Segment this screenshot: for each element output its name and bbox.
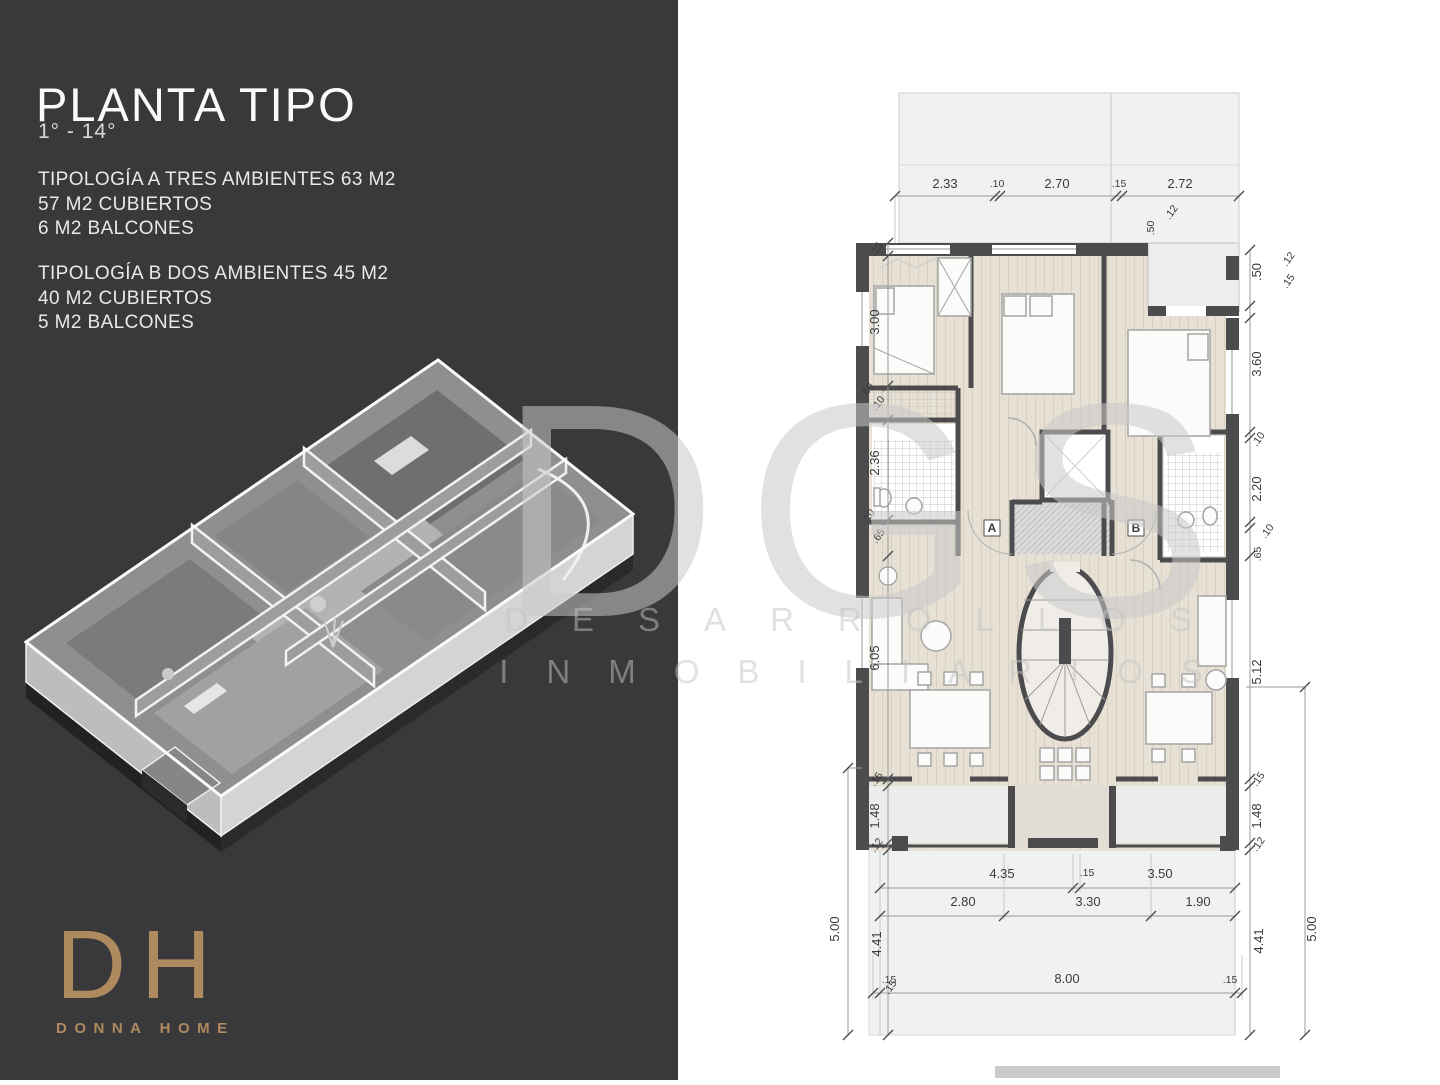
left-info-panel: PLANTA TIPO 1° - 14° TIPOLOGÍA A TRES AM… (0, 0, 678, 1080)
dim-right-7: .10 (1258, 522, 1276, 541)
dim-right-outer-1: 4.41 (1251, 928, 1266, 953)
isometric-floorplan-render (18, 352, 658, 857)
dim-left-outer-2: 5.00 (827, 916, 842, 941)
dim-bottom-upper-3: 3.50 (1147, 866, 1172, 881)
dim-right-1: .50 (1249, 263, 1264, 281)
dim-bottom-mid-2: 3.30 (1075, 894, 1100, 909)
typology-a-block: TIPOLOGÍA A TRES AMBIENTES 63 M2 57 M2 C… (38, 168, 396, 242)
dim-bottom-mid-1: 2.80 (950, 894, 975, 909)
dim-right-10: .15 (1249, 770, 1267, 789)
unit-label-a: A (988, 521, 997, 535)
dim-bottom-upper-1: 4.35 (989, 866, 1014, 881)
typology-b-block: TIPOLOGÍA B DOS AMBIENTES 45 M2 40 M2 CU… (38, 262, 388, 336)
dim-bottom-lower-2: 8.00 (1054, 971, 1079, 986)
dim-left-10: 1.48 (867, 803, 882, 828)
presentation-slide: PLANTA TIPO 1° - 14° TIPOLOGÍA A TRES AM… (0, 0, 1440, 1080)
dim-right-3: .12 (1279, 250, 1297, 269)
floor-plan-area: A B (678, 0, 1440, 1080)
dim-left-5: 2.36 (867, 450, 882, 475)
brand-logo-name: DONNA HOME (56, 1020, 235, 1037)
unit-label-b: B (1132, 521, 1141, 535)
dim-right-2: .15 (1279, 272, 1297, 291)
brand-logo: DH DONNA HOME (56, 916, 235, 1037)
dim-right-8: .65 (1252, 547, 1264, 562)
floor-range: 1° - 14° (38, 120, 117, 144)
typology-a-line2: 57 M2 CUBIERTOS (38, 193, 396, 218)
typology-b-line3: 5 M2 BALCONES (38, 311, 388, 336)
dim-top-1: 2.33 (932, 176, 957, 191)
brand-logo-initials: DH (56, 916, 235, 1013)
floor-plan-drawing: A B (678, 0, 1440, 1080)
dim-top-3: 2.70 (1044, 176, 1069, 191)
dim-balcony-b-depth: .50 (1145, 221, 1157, 236)
dim-right-9: 5.12 (1249, 659, 1264, 684)
dim-right-5: .10 (1249, 430, 1267, 449)
dim-bottom-lower-3: .15 (1223, 974, 1238, 986)
dim-right-6: 2.20 (1249, 476, 1264, 501)
typology-b-line1: TIPOLOGÍA B DOS AMBIENTES 45 M2 (38, 262, 388, 287)
dim-left-8: 6.05 (867, 645, 882, 670)
dim-bottom-upper-2: .15 (1080, 867, 1095, 879)
dim-right-outer-2: 5.00 (1304, 916, 1319, 941)
dim-top-4: .15 (1112, 178, 1127, 190)
dim-right-11: 1.48 (1249, 803, 1264, 828)
dim-right-4: 3.60 (1249, 351, 1264, 376)
typology-a-line3: 6 M2 BALCONES (38, 217, 396, 242)
dim-left-outer-1: 4.41 (869, 931, 884, 956)
dim-top-5: 2.72 (1167, 176, 1192, 191)
dim-bottom-lower-1: .15 (882, 974, 897, 986)
dim-bottom-mid-3: 1.90 (1185, 894, 1210, 909)
dim-left-2: 3.00 (867, 309, 882, 334)
typology-b-line2: 40 M2 CUBIERTOS (38, 287, 388, 312)
dim-right-12: .12 (1249, 835, 1267, 854)
typology-a-line1: TIPOLOGÍA A TRES AMBIENTES 63 M2 (38, 168, 396, 193)
dim-top-2: .10 (990, 178, 1005, 190)
